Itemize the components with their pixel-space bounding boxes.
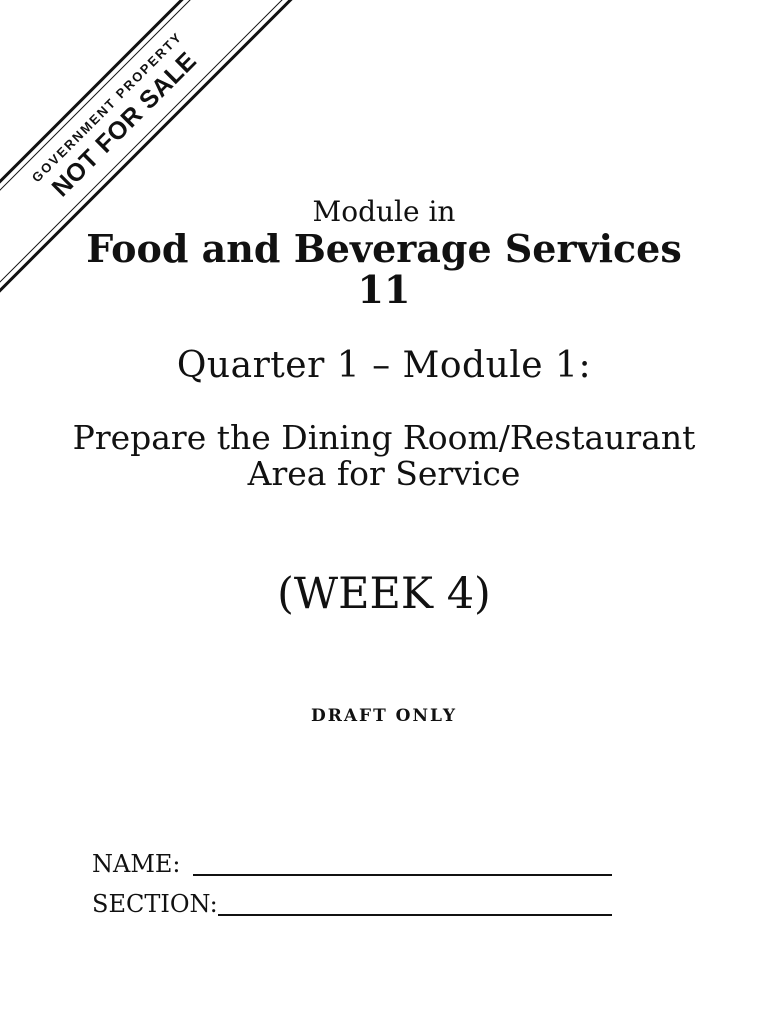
module-topic: Prepare the Dining Room/Restaurant Area … bbox=[0, 420, 768, 492]
grade-level: 11 bbox=[0, 269, 768, 310]
section-field-row: SECTION: bbox=[92, 886, 612, 918]
name-field-row: NAME: bbox=[92, 846, 612, 878]
section-blank-line bbox=[218, 890, 612, 916]
module-in-label: Module in bbox=[0, 196, 768, 228]
quarter-module-title: Quarter 1 – Module 1: bbox=[0, 346, 768, 386]
name-label: NAME: bbox=[92, 850, 181, 878]
topic-line-2: Area for Service bbox=[0, 456, 768, 492]
not-for-sale-label: NOT FOR SALE bbox=[46, 46, 202, 202]
name-blank-line bbox=[193, 850, 612, 876]
subject-title: Food and Beverage Services bbox=[0, 228, 768, 269]
topic-line-1: Prepare the Dining Room/Restaurant bbox=[0, 420, 768, 456]
module-header: Module in Food and Beverage Services 11 bbox=[0, 196, 768, 310]
week-label: (WEEK 4) bbox=[0, 570, 768, 618]
section-label: SECTION: bbox=[92, 890, 218, 918]
module-cover-page: GOVERNMENT PROPERTY NOT FOR SALE Module … bbox=[0, 0, 768, 1024]
draft-only-label: DRAFT ONLY bbox=[0, 706, 768, 726]
